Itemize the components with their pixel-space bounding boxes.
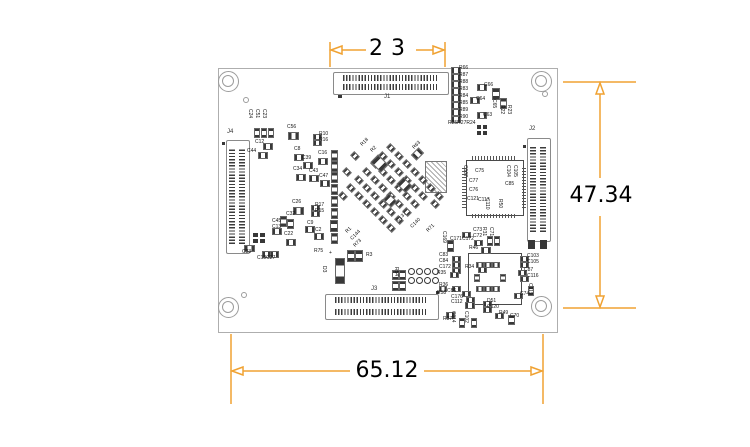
component-chip [331,196,338,207]
component-chip [347,250,355,262]
component-label: C32 [286,212,295,217]
solder-pad [253,233,258,237]
arrow-left-icon [232,367,243,375]
mounting-hole [531,296,552,317]
mounting-hole [218,71,239,92]
component-chip [287,219,294,229]
solder-pad [260,233,265,237]
mounting-hole [531,71,552,92]
component-label: R87 [459,73,468,78]
component-label: C63 [483,113,492,118]
component-label: R83 [459,87,468,92]
component-label: C22 [284,232,293,237]
solder-pad [338,95,342,98]
connector-label-j1: J1 [384,94,390,100]
connector-label-j2: J2 [529,126,535,132]
component-label: C33 [242,250,251,255]
component-label: C66 [484,83,493,88]
arrow-up-icon [596,83,604,94]
component-chip [331,233,338,244]
component-chip [484,262,492,268]
connector-pins [229,148,235,244]
through-hole-pad [408,277,415,284]
through-hole-pad [424,268,431,275]
component-label: C13 [272,225,281,230]
solder-pad [222,142,225,145]
component-label: D3 [321,266,326,272]
solder-pad [260,239,265,243]
component-label: C71 [488,227,493,236]
component-chip [481,247,491,254]
component-label: C47 [319,174,328,179]
component-label: C76 [469,188,478,193]
component-label: C102 [463,311,468,323]
component-label: C24 [247,109,252,118]
component-chip [476,286,484,292]
component-chip [500,274,506,282]
component-label: C105 [527,260,539,265]
component-label: C9 [307,221,313,226]
component-label: R50 [497,199,502,208]
through-hole-pad [416,268,423,275]
arrow-down-icon [596,296,604,307]
component-chip [492,262,500,268]
component-label: R25R27R24 [448,121,476,126]
component-chip [355,250,363,262]
component-label: R23 [506,105,511,114]
solder-pad [477,125,481,129]
component-chip [492,286,500,292]
component-label: C56 [287,125,296,130]
component-label: R84 [459,94,468,99]
ic-pins [472,214,516,218]
component-chip [331,208,338,219]
component-label: C39 [302,156,311,161]
component-label: C34 [293,167,302,172]
component-chip [309,175,319,182]
arrow-left-icon [331,46,342,54]
connector-pins [335,297,427,303]
component-label: C26 [292,200,301,205]
component-label: C18C27 [257,256,275,261]
component-chip [474,274,480,282]
component-label: R35 [437,271,446,276]
component-label: R49 [499,311,508,316]
ic-pins [472,156,516,160]
connector-pins [335,309,427,315]
solder-pad [483,131,487,135]
component-label: C85 [505,182,514,187]
component-chip [392,281,399,291]
connector-pins [343,84,437,90]
arrow-right-icon [531,367,542,375]
component-chip [318,158,328,165]
component-chip [484,286,492,292]
component-chip [331,184,338,195]
component-chip [288,132,299,140]
solder-pad [477,131,481,135]
component-label: R85 [459,101,468,106]
via [241,292,247,298]
component-chip [258,152,268,159]
connector-label-j4: J4 [227,129,233,135]
component-label: C44 [247,149,256,154]
solder-pad [528,240,535,249]
through-hole-pad [424,277,431,284]
solder-pad [523,145,526,148]
component-chip [296,174,306,181]
component-label: C104 [505,165,510,177]
component-label: C70 [510,314,519,319]
component-label: R37 [443,317,452,322]
component-label: C43 [309,169,318,174]
component-label: C8 [294,147,300,152]
component-label: C105 [512,165,517,177]
component-chip [476,262,484,268]
component-label: R66 [459,66,468,71]
component-chip [494,236,500,246]
component-chip [314,233,324,240]
component-chip [305,226,315,233]
ic-pins [522,166,526,208]
component-chip [331,172,338,183]
component-chip [465,302,475,309]
component-label: R15 [315,209,324,214]
component-label: C120 [487,305,499,310]
component-chip [331,161,338,172]
component-label: R34 [465,265,474,270]
component-label: R58 [437,291,446,296]
component-label: C77 [469,179,478,184]
component-label: C112 [451,300,463,305]
dimension-bottom-value: 65.12 [353,360,422,382]
mounting-hole [218,297,239,318]
component-chip [450,272,459,278]
component-label: R46 [469,246,478,251]
arrow-right-icon [433,46,444,54]
connector-pins [343,75,437,81]
component-chip [487,236,493,246]
component-label: C171 [450,237,462,242]
component-label: C23 [261,109,266,118]
component-chip [399,270,406,280]
component-label: C107 [462,165,467,177]
component-label: R75 [314,249,323,254]
connector-pins [540,146,546,232]
connector-pins [239,148,245,244]
through-hole-pad [416,277,423,284]
component-chip [335,258,345,284]
component-label: + [329,251,332,256]
component-label: C16 [318,151,327,156]
component-chip [399,281,406,291]
through-hole-pad [432,277,439,284]
component-label: R31 [481,227,486,236]
connector-label-j3: J3 [371,286,377,292]
component-label: C12 [255,140,264,145]
dimension-right-value: 47.34 [567,185,636,207]
component-chip [263,143,273,150]
component-label: C64 [476,97,485,102]
through-hole-pad [408,268,415,275]
component-label: C75 [475,169,484,174]
via [243,97,249,103]
component-label: R22 [499,105,504,114]
component-label: R89 [459,108,468,113]
component-chip [331,150,338,161]
via [542,91,548,97]
component-chip [330,220,338,232]
solder-pad [540,240,547,249]
dimension-top-value: 23 [366,38,416,60]
component-label: R54 [393,267,398,276]
component-label: R3 [366,253,372,258]
component-chip [320,180,330,187]
component-chip [268,128,274,138]
component-chip [261,128,267,138]
component-label: R88 [459,80,468,85]
component-label: C74 [520,292,529,297]
component-label: C116 [527,274,539,279]
component-label: C2 [315,228,321,233]
component-label: C110 [484,198,489,210]
component-chip [471,318,477,328]
pcb-dimension-drawing: 23 47.34 65.12 J1J2J3J4R66R87R88R83R84R8… [0,0,750,447]
component-chip [286,239,296,246]
component-chip [254,128,260,138]
solder-pad [483,125,487,129]
solder-pad [253,239,258,243]
component-label: R16 [319,138,328,143]
connector-pins [530,146,536,232]
component-label: C65 [491,99,496,108]
component-label: C169 [441,231,446,243]
component-label: C51 [254,109,259,118]
